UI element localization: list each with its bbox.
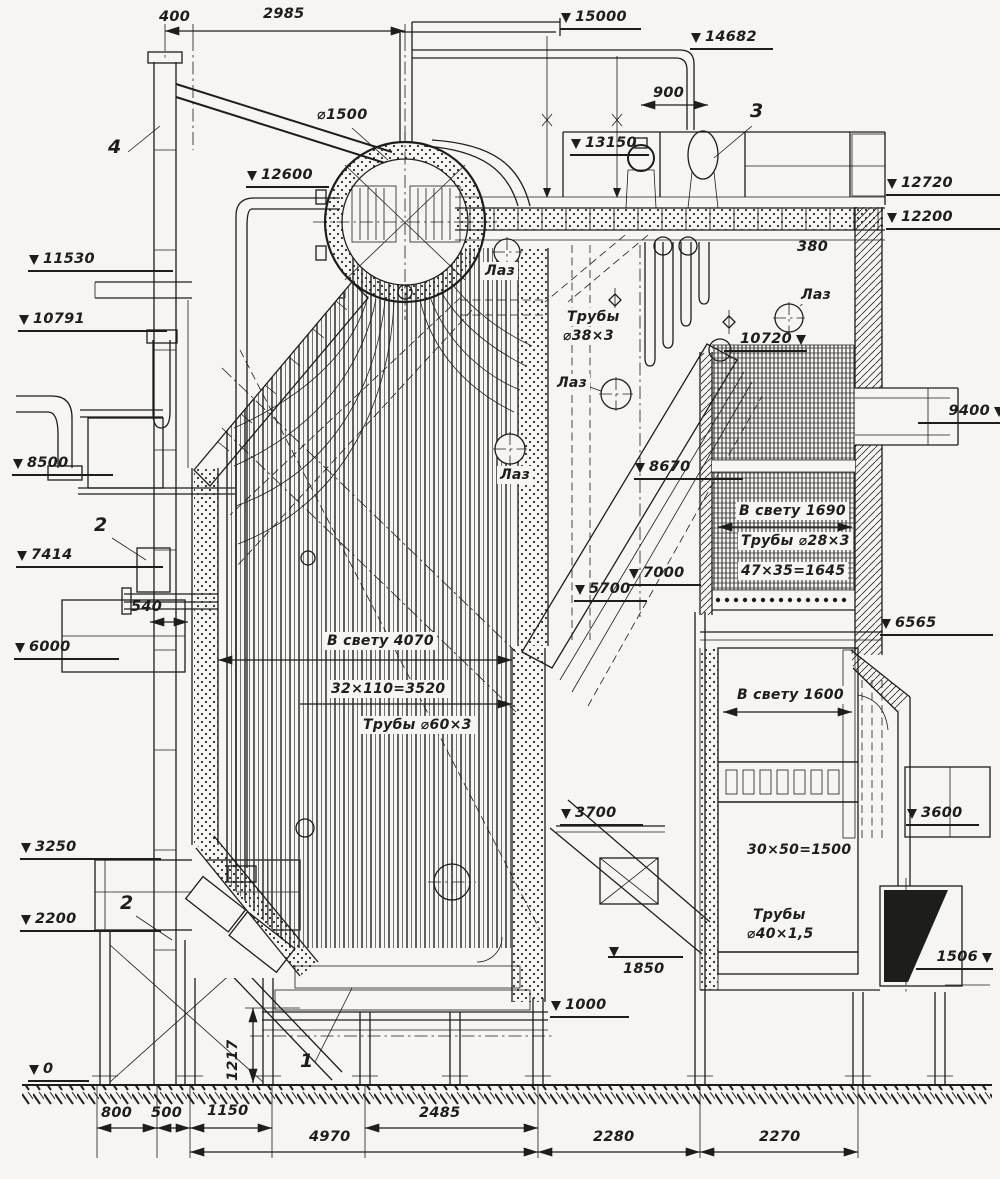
elevation-15000: 15000 [560, 8, 641, 30]
note-tubes-60: Трубы ⌀60×3 [360, 716, 475, 734]
note-pitch-30x50: 30×50=1500 [744, 841, 854, 859]
elevation-8670: 8670 [634, 458, 743, 480]
note-pitch-32x110: 32×110=3520 [328, 680, 448, 698]
elevation-8500: 8500 [12, 454, 113, 476]
elevation-12200: 12200 [886, 208, 1000, 230]
note-pitch-47x35: 47×35=1645 [738, 562, 848, 580]
elevation-5700: 5700 [574, 580, 647, 602]
dim-1150: 1150 [206, 1102, 250, 1120]
manhole-label-3: Лаз [497, 466, 533, 484]
dim-2270: 2270 [758, 1128, 802, 1146]
elevation-1506: 1506 [916, 948, 993, 970]
dim-400: 400 [158, 8, 191, 26]
elevation-6000: 6000 [14, 638, 119, 660]
dim-380: 380 [796, 238, 829, 256]
part-number-3: 3 [750, 102, 764, 120]
note-tubes-38-line1: Трубы [564, 308, 623, 326]
boiler-drawing-page: 1500014682131501272012200126001153010791… [0, 0, 1000, 1179]
elevation-12600: 12600 [246, 166, 329, 188]
elevation-3250: 3250 [20, 838, 161, 860]
dim-drum-diameter: ⌀1500 [316, 106, 369, 124]
elevation-7414: 7414 [16, 546, 163, 568]
dim-4970: 4970 [308, 1128, 352, 1146]
dim-500: 500 [150, 1104, 183, 1122]
elevation-10791: 10791 [18, 310, 167, 332]
elevation-13150: 13150 [570, 134, 649, 156]
elevation-12720: 12720 [886, 174, 1000, 196]
elevation-9400: 9400 [918, 402, 1000, 424]
dim-800: 800 [100, 1104, 133, 1122]
elevation-6565: 6565 [880, 614, 993, 636]
elevation-1000: 1000 [550, 996, 629, 1018]
elevation-3700: 3700 [560, 804, 643, 826]
part-number-2-upper: 2 [94, 516, 108, 534]
note-tubes-38-line2: ⌀38×3 [560, 327, 617, 345]
dim-2485: 2485 [418, 1104, 462, 1122]
dim-2985: 2985 [262, 5, 306, 23]
elevation-3600: 3600 [906, 804, 979, 826]
elevation-0: 0 [28, 1060, 89, 1082]
elevation-2200: 2200 [20, 910, 161, 932]
manhole-label-1: Лаз [482, 262, 518, 280]
elevation-1850: 1850 [608, 956, 683, 980]
dim-540: 540 [130, 598, 163, 616]
dim-2280: 2280 [592, 1128, 636, 1146]
dim-900: 900 [652, 84, 685, 102]
dim-1217: 1217 [224, 1038, 242, 1082]
part-number-2-lower: 2 [120, 894, 134, 912]
part-number-1: 1 [300, 1052, 314, 1070]
elevation-11530: 11530 [28, 250, 173, 272]
annotation-overlay: 1500014682131501272012200126001153010791… [0, 0, 1000, 1179]
manhole-label-2: Лаз [554, 374, 590, 392]
note-clear-width-4070: В свету 4070 [324, 632, 437, 650]
elevation-10720: 10720 [724, 330, 807, 352]
note-clear-width-1600: В свету 1600 [734, 686, 847, 704]
part-number-4: 4 [108, 138, 122, 156]
note-clear-width-1690: В свету 1690 [736, 502, 849, 520]
note-tubes-40-line1: Трубы [750, 906, 809, 924]
elevation-14682: 14682 [690, 28, 773, 50]
note-tubes-40-line2: ⌀40×1,5 [744, 925, 817, 943]
note-tubes-28: Трубы ⌀28×3 [738, 532, 853, 550]
manhole-label-4: Лаз [798, 286, 834, 304]
